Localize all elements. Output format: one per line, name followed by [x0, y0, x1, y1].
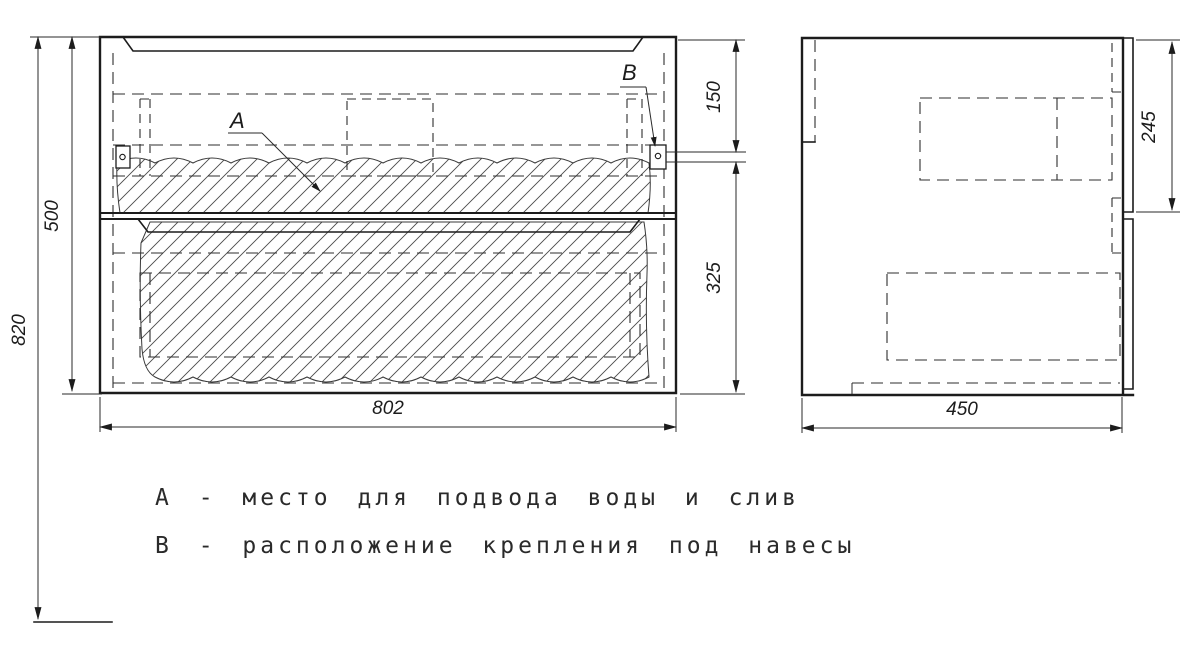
notes: А - место для подвода воды и слив В - ра…	[155, 485, 855, 559]
dimension-body-depth: 450	[802, 397, 1122, 433]
dim-150-text: 150	[704, 81, 725, 113]
side-outline	[802, 38, 1133, 395]
dim-820-text: 820	[9, 314, 30, 346]
hatch-section-upper	[117, 158, 650, 213]
dimension-body-width: 802	[100, 397, 676, 432]
dim-450-text: 450	[946, 399, 978, 420]
dim-245-text: 245	[1139, 111, 1160, 144]
side-hidden-notch-top	[1112, 43, 1123, 92]
side-hidden-notch-mid	[1112, 198, 1123, 253]
side-view	[802, 38, 1133, 395]
dimension-hanger-top-offset: 150	[678, 40, 745, 152]
dim-500-text: 500	[42, 200, 63, 232]
note-line-b: В - расположение крепления под навесы	[155, 533, 855, 559]
front-top-chamfer-band	[123, 37, 643, 51]
note-line-a: А - место для подвода воды и слив	[155, 485, 800, 511]
side-hidden-lower-drawer	[887, 273, 1120, 360]
front-view: A B	[100, 37, 746, 393]
dim-802-text: 802	[372, 398, 404, 419]
callout-a-label: A	[228, 108, 245, 133]
hanging-rail-lower	[1123, 219, 1133, 389]
drawing-canvas: A B 820	[0, 0, 1200, 656]
mounting-bracket-left	[116, 146, 130, 168]
callout-b: B	[620, 60, 655, 146]
technical-drawing: A B 820	[0, 0, 1200, 656]
bracket-level-lines	[666, 152, 746, 162]
hanging-rail-upper	[1123, 38, 1133, 212]
dim-325-text: 325	[704, 262, 725, 294]
hatch-section-lower	[140, 222, 649, 382]
callout-b-leader	[646, 87, 655, 146]
side-hidden-upper-drawer	[920, 98, 1112, 180]
dimension-hanger-bottom-offset: 325	[680, 162, 745, 394]
dimension-total-height: 820	[9, 37, 112, 622]
dimension-rail-height: 245	[1136, 40, 1180, 212]
dimension-body-height: 500	[42, 37, 102, 394]
callout-b-label: B	[622, 60, 637, 85]
mounting-bracket-right	[650, 145, 666, 169]
